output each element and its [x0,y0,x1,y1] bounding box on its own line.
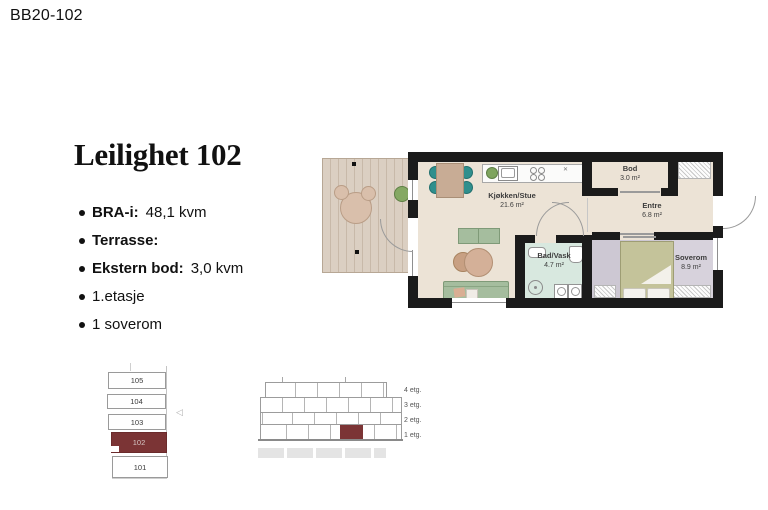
ground-line [258,439,403,441]
floor-label-1: 1 etg. [404,431,422,440]
elevation-diagram: 4 etg. 3 etg. 2 etg. 1 etg. [0,0,768,510]
floor-label-2: 2 etg. [404,416,422,425]
page: BB20-102 Leilighet 102 BRA-i: 48,1 kvm T… [0,0,768,510]
floor-label-4: 4 etg. [404,386,422,395]
foundation-band [258,448,386,458]
unit-position-highlight [340,425,363,439]
floor-label-3: 3 etg. [404,401,422,410]
